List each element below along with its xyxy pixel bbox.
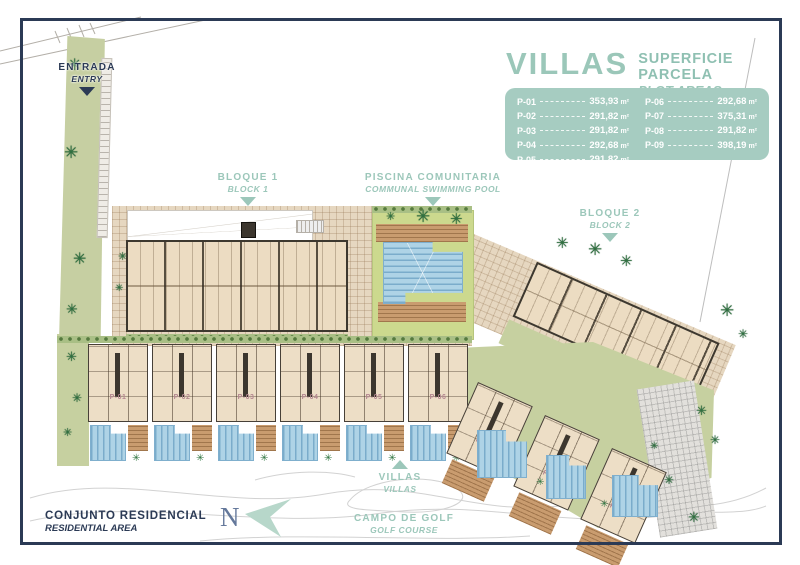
communal-pool-label-en: COMMUNAL SWIMMING POOL xyxy=(343,184,523,194)
plot-area-row: P-09 398,19m² xyxy=(645,140,757,151)
plot-id: P-06 xyxy=(645,97,664,107)
palm-tree-icon: ✳ xyxy=(450,212,463,227)
north-arrow-icon xyxy=(243,497,295,539)
plot-area-value: 292,68m² xyxy=(717,96,757,107)
villa-floorplan xyxy=(280,344,340,422)
pool-deck-bottom xyxy=(378,302,466,322)
villa-pool xyxy=(154,425,190,461)
palm-tree-icon: ✳ xyxy=(115,284,123,294)
villa-plot-label: P-04 xyxy=(280,394,340,401)
leader-line xyxy=(668,116,713,117)
palm-tree-icon: ✳ xyxy=(66,350,77,363)
plot-id: P-04 xyxy=(517,140,536,150)
villa-deck xyxy=(320,425,340,451)
villa-floorplan xyxy=(216,344,276,422)
entrance-label-es: ENTRADA xyxy=(48,62,126,74)
plant-icon: ✳ xyxy=(536,478,544,488)
plot-area-value: 398,19m² xyxy=(717,140,757,151)
plot-id: P-09 xyxy=(645,140,664,150)
plot-areas-column-1: P-01 353,93m² P-02 291,82m² P-03 291,82m… xyxy=(517,96,629,154)
north-letter: N xyxy=(220,502,240,533)
legend-subtitle-es: SUPERFICIE PARCELA xyxy=(638,52,800,84)
palm-tree-icon: ✳ xyxy=(63,428,72,439)
block1-label-en: BLOCK 1 xyxy=(198,184,298,194)
plot-areas-panel: P-01 353,93m² P-02 291,82m² P-03 291,82m… xyxy=(505,88,769,160)
palm-tree-icon: ✳ xyxy=(66,302,78,316)
plant-icon: ✳ xyxy=(600,500,608,510)
plot-id: P-05 xyxy=(517,155,536,165)
plant-icon: ✳ xyxy=(260,454,268,464)
palm-tree-icon: ✳ xyxy=(72,392,82,404)
plot-area-value: 291,82m² xyxy=(717,125,757,136)
palm-tree-icon: ✳ xyxy=(710,434,720,446)
palm-tree-icon: ✳ xyxy=(738,328,748,340)
villa-pool xyxy=(90,425,126,461)
plot-id: P-03 xyxy=(517,126,536,136)
communal-pool-label-es: PISCINA COMUNITARIA xyxy=(343,172,523,184)
plot-area-value: 292,68m² xyxy=(589,140,629,151)
palm-tree-icon: ✳ xyxy=(64,144,78,161)
leader-line xyxy=(668,130,713,131)
villa-deck xyxy=(256,425,276,451)
palm-tree-icon: ✳ xyxy=(118,252,127,263)
pointer-triangle-icon xyxy=(425,197,441,206)
plot-id: P-02 xyxy=(517,111,536,121)
plot-area-value: 375,31m² xyxy=(717,111,757,122)
leader-line xyxy=(540,159,585,160)
plot-area-row: P-07 375,31m² xyxy=(645,111,757,122)
villa-deck xyxy=(128,425,148,451)
villas-pointer-es: VILLAS xyxy=(360,472,440,484)
pointer-triangle-icon xyxy=(79,87,95,96)
block1-label-es: BLOQUE 1 xyxy=(198,172,298,184)
leader-line xyxy=(540,145,585,146)
villa-pool xyxy=(218,425,254,461)
plot-area-value: 291,82m² xyxy=(589,154,629,165)
villa-unit-p03: P-03 ✳ xyxy=(216,344,278,484)
access-road-lines xyxy=(0,17,210,64)
plot-area-row: P-04 292,68m² xyxy=(517,140,629,151)
villa-deck xyxy=(384,425,404,451)
villa-plot-label: P-02 xyxy=(152,394,212,401)
plot-area-row: P-01 353,93m² xyxy=(517,96,629,107)
villas-pointer-label: VILLAS VILLAS xyxy=(360,460,440,494)
villa-unit-p01: P-01 ✳ xyxy=(88,344,150,484)
palm-tree-icon: ✳ xyxy=(650,442,658,452)
pointer-triangle-icon xyxy=(602,233,618,242)
palm-tree-icon: ✳ xyxy=(588,241,602,258)
site-plan-page: P-01 ✳ P-02 ✳ P-03 ✳ P-04 ✳ xyxy=(0,0,800,565)
villa-floorplan xyxy=(88,344,148,422)
leader-line xyxy=(540,101,585,102)
plant-icon: ✳ xyxy=(132,454,140,464)
residential-label-en: RESIDENTIAL AREA xyxy=(45,523,206,535)
villa-deck xyxy=(192,425,212,451)
entrance-label: ENTRADA ENTRY xyxy=(48,62,126,96)
plot-area-row: P-08 291,82m² xyxy=(645,125,757,136)
residential-area-label: CONJUNTO RESIDENCIAL RESIDENTIAL AREA xyxy=(45,509,206,535)
golf-label-en: GOLF COURSE xyxy=(334,525,474,535)
palm-tree-icon: ✳ xyxy=(620,254,633,269)
plant-icon: ✳ xyxy=(196,454,204,464)
plot-areas-column-2: P-06 292,68m² P-07 375,31m² P-08 291,82m… xyxy=(645,96,757,154)
villa-pool xyxy=(410,425,446,461)
plot-id: P-08 xyxy=(645,126,664,136)
legend-title: VILLAS xyxy=(506,48,628,79)
residential-label-es: CONJUNTO RESIDENCIAL xyxy=(45,509,206,523)
plot-area-value: 291,82m² xyxy=(589,111,629,122)
palm-tree-icon: ✳ xyxy=(664,474,674,486)
villa-plot-label: P-06 xyxy=(408,394,468,401)
block2-label: BLOQUE 2 BLOCK 2 xyxy=(560,208,660,242)
palm-tree-icon: ✳ xyxy=(688,510,700,524)
palm-tree-icon: ✳ xyxy=(696,404,707,417)
villa-pool xyxy=(346,425,382,461)
villa-pool xyxy=(282,425,318,461)
golf-label-es: CAMPO DE GOLF xyxy=(334,513,474,525)
pergola-structure xyxy=(296,220,324,233)
leader-line xyxy=(668,145,713,146)
plot-id: P-07 xyxy=(645,111,664,121)
block2-label-en: BLOCK 2 xyxy=(560,220,660,230)
villa-unit-p04: P-04 ✳ xyxy=(280,344,342,484)
plant-icon: ✳ xyxy=(324,454,332,464)
palm-tree-icon: ✳ xyxy=(416,208,430,225)
villas-pointer-en: VILLAS xyxy=(360,484,440,494)
plot-area-value: 353,93m² xyxy=(589,96,629,107)
leader-line xyxy=(668,101,713,102)
villa-floorplan xyxy=(408,344,468,422)
golf-course-label: CAMPO DE GOLF GOLF COURSE xyxy=(334,513,474,535)
villa-unit-p02: P-02 ✳ xyxy=(152,344,214,484)
villa-floorplan xyxy=(152,344,212,422)
plot-area-row: P-06 292,68m² xyxy=(645,96,757,107)
plot-area-row: P-03 291,82m² xyxy=(517,125,629,136)
pointer-triangle-icon xyxy=(240,197,256,206)
villa-plot-label: P-01 xyxy=(88,394,148,401)
leader-line xyxy=(540,130,585,131)
palm-tree-icon: ✳ xyxy=(73,252,86,268)
plot-area-value: 291,82m² xyxy=(589,125,629,136)
plot-area-row: P-02 291,82m² xyxy=(517,111,629,122)
villa-floorplan xyxy=(344,344,404,422)
block1-building xyxy=(126,240,348,332)
communal-pool-label: PISCINA COMUNITARIA COMMUNAL SWIMMING PO… xyxy=(343,172,523,206)
villa-plot-label: P-05 xyxy=(344,394,404,401)
utility-structure xyxy=(241,222,256,238)
plot-id: P-01 xyxy=(517,97,536,107)
leader-line xyxy=(540,116,585,117)
pointer-triangle-icon xyxy=(392,460,408,469)
palm-tree-icon: ✳ xyxy=(386,212,395,223)
hedge-row xyxy=(57,336,472,343)
entrance-label-en: ENTRY xyxy=(48,74,126,84)
block1-label: BLOQUE 1 BLOCK 1 xyxy=(198,172,298,206)
plot-area-row: P-05 291,82m² xyxy=(517,154,629,165)
villa-plot-label: P-03 xyxy=(216,394,276,401)
access-road-surface xyxy=(127,210,313,243)
block2-label-es: BLOQUE 2 xyxy=(560,208,660,220)
palm-tree-icon: ✳ xyxy=(720,302,734,319)
